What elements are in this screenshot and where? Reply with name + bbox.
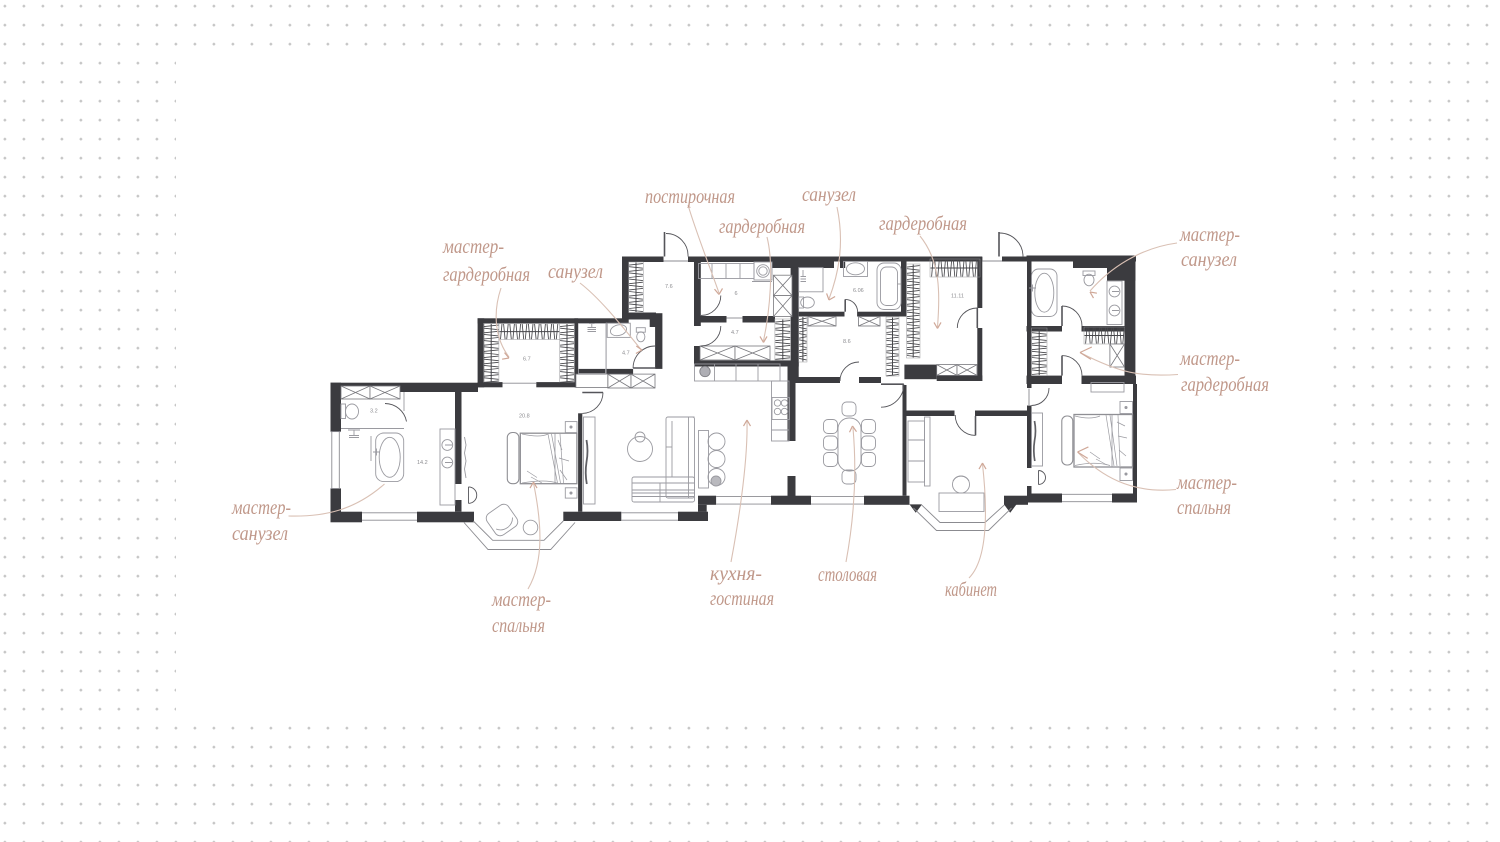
svg-text:мастер-: мастер- (231, 497, 291, 519)
svg-text:кухня-: кухня- (710, 563, 762, 585)
svg-text:санузел: санузел (548, 261, 603, 283)
svg-text:8.6: 8.6 (843, 339, 851, 345)
svg-text:санузел: санузел (232, 523, 288, 545)
svg-text:мастер-: мастер- (1176, 472, 1237, 494)
svg-text:11.11: 11.11 (951, 294, 964, 300)
svg-text:4.7: 4.7 (622, 351, 630, 357)
svg-text:6.06: 6.06 (853, 288, 864, 294)
svg-text:6.7: 6.7 (523, 357, 531, 363)
svg-text:гостиная: гостиная (710, 588, 774, 610)
svg-text:санузел: санузел (1181, 249, 1237, 271)
svg-text:20.8: 20.8 (519, 414, 530, 420)
svg-text:14.2: 14.2 (417, 460, 428, 466)
svg-text:3.2: 3.2 (370, 409, 378, 415)
svg-text:гардеробная: гардеробная (879, 213, 967, 235)
svg-text:6: 6 (735, 291, 738, 297)
svg-text:4.7: 4.7 (731, 330, 739, 336)
svg-text:мастер-: мастер- (491, 589, 551, 611)
svg-text:гардеробная: гардеробная (1181, 374, 1269, 396)
svg-text:гардеробная: гардеробная (443, 264, 530, 286)
svg-text:гардеробная: гардеробная (719, 216, 805, 238)
svg-text:столовая: столовая (818, 564, 877, 586)
svg-text:постирочная: постирочная (645, 186, 735, 208)
svg-text:спальня: спальня (492, 615, 545, 637)
svg-text:мастер-: мастер- (1179, 348, 1240, 370)
svg-text:санузел: санузел (802, 184, 856, 206)
svg-text:мастер-: мастер- (1179, 224, 1240, 246)
svg-text:мастер-: мастер- (442, 236, 504, 258)
svg-text:спальня: спальня (1177, 497, 1231, 519)
svg-text:кабинет: кабинет (945, 579, 997, 601)
svg-text:7.6: 7.6 (665, 284, 673, 290)
